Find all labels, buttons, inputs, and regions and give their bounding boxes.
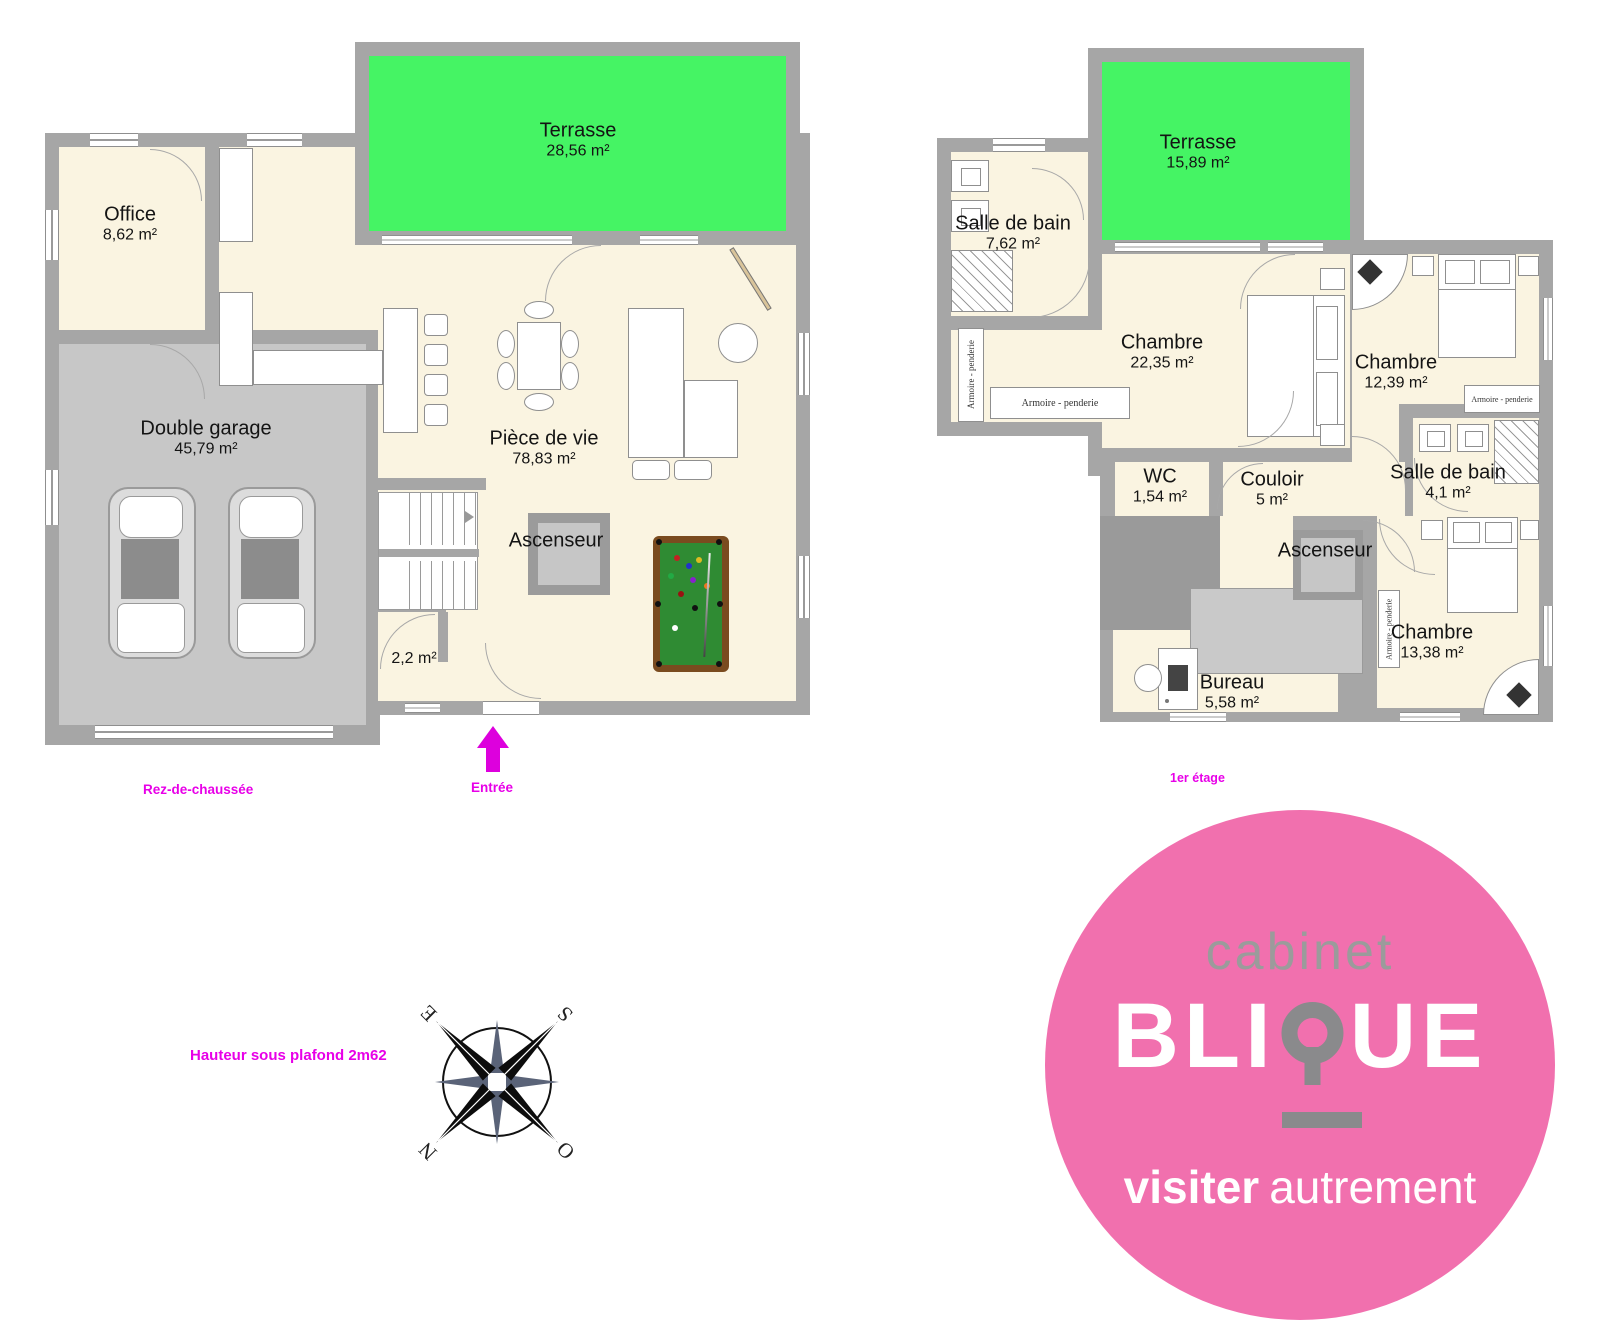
stool-icon: [424, 344, 448, 366]
window: [45, 470, 59, 525]
window: [1170, 712, 1226, 722]
logo-brand-prefix: BLI: [1112, 990, 1275, 1082]
compass-letter-s: S: [552, 1002, 577, 1027]
logo-q-icon: [1282, 1002, 1344, 1064]
sliding-bay-window: [382, 235, 572, 245]
window: [993, 138, 1045, 152]
stair-arrow-icon: [465, 511, 474, 523]
wardrobe-label: Armoire - penderie: [958, 328, 984, 422]
stool-icon: [424, 404, 448, 426]
chair-icon: [524, 393, 554, 411]
stair-divider: [379, 549, 479, 557]
caption-1er-etage: 1er étage: [1170, 771, 1225, 785]
stool-icon: [424, 314, 448, 336]
car-icon: [228, 487, 316, 659]
compass-rose-icon: N E S O: [392, 977, 602, 1187]
elevator-shaft: [528, 513, 610, 595]
car-icon: [108, 487, 196, 659]
logo-underline-icon: [1282, 1112, 1362, 1128]
kitchen-counter-icon: [253, 350, 383, 385]
logo-tagline: visiterautrement: [1124, 1160, 1477, 1214]
stool-icon: [424, 374, 448, 396]
chair-icon: [561, 362, 579, 390]
round-table-icon: [718, 323, 758, 363]
sliding-bay-window: [1115, 242, 1260, 252]
wall: [438, 612, 448, 662]
sofa-icon: [684, 380, 738, 458]
window: [798, 333, 810, 395]
room-label-office: Office8,62 m²: [103, 203, 157, 244]
room-label-ascenseur-rdc: Ascenseur: [509, 530, 604, 553]
sink-icon: [951, 160, 989, 192]
room-label-chambre-3: Chambre13,38 m²: [1391, 621, 1473, 662]
sofa-cushion-icon: [632, 460, 670, 480]
room-label-ascenseur-etage: Ascenseur: [1278, 540, 1373, 563]
logo-word-cabinet: cabinet: [1206, 922, 1395, 982]
wardrobe-label: Armoire - penderie: [1464, 385, 1540, 413]
window: [45, 210, 59, 260]
entrance-arrow-icon: [477, 726, 509, 772]
chair-icon: [497, 330, 515, 358]
room-label-terrasse-rdc: Terrasse28,56 m²: [540, 119, 617, 160]
sofa-cushion-icon: [674, 460, 712, 480]
nightstand-icon: [1518, 256, 1539, 276]
chair-icon: [497, 362, 515, 390]
window: [1543, 606, 1553, 666]
shower-icon: [951, 250, 1013, 312]
nightstand-icon: [1320, 268, 1345, 290]
room-label-piece-de-vie: Pièce de vie78,83 m²: [490, 427, 599, 468]
room-label-salle-de-bain-1: Salle de bain7,62 m²: [955, 212, 1071, 253]
room-label-salle-de-bain-2: Salle de bain4,1 m²: [1390, 461, 1506, 502]
room-label-garage: Double garage45,79 m²: [140, 417, 271, 458]
bed-icon: [1447, 517, 1518, 613]
chair-icon: [561, 330, 579, 358]
stairwell-opening: [1190, 588, 1363, 674]
room-label-wc: WC1,54 m²: [1133, 465, 1187, 506]
ceiling-height-note: Hauteur sous plafond 2m62: [190, 1047, 387, 1064]
window: [798, 556, 810, 618]
nightstand-icon: [1520, 520, 1539, 540]
window: [640, 235, 698, 245]
sofa-icon: [628, 308, 684, 458]
window: [1268, 242, 1323, 252]
kitchen-cabinet-icon: [219, 292, 253, 386]
kitchen-island-icon: [383, 308, 418, 433]
sink-icon: [1419, 424, 1451, 452]
kitchen-cabinet-icon: [219, 148, 253, 242]
chair-icon: [524, 301, 554, 319]
window: [405, 703, 440, 713]
stair-flight: [399, 561, 477, 609]
logo-brand-suffix: UE: [1350, 990, 1488, 1082]
wall: [366, 344, 378, 715]
bed-icon: [1438, 254, 1516, 358]
window: [90, 133, 138, 147]
garage-door: [95, 725, 333, 739]
room-label-chambre-2: Chambre12,39 m²: [1355, 351, 1437, 392]
logo-brand-name: BLIUE: [1112, 990, 1487, 1082]
sink-icon: [1457, 424, 1489, 452]
nightstand-icon: [1320, 424, 1345, 446]
desk-icon: [1158, 648, 1198, 710]
cue-stick-icon: [703, 553, 710, 657]
window: [1543, 298, 1553, 360]
staircase-icon: [378, 492, 478, 610]
room-label-entry-hall: 2,2 m²: [391, 650, 436, 668]
caption-entree: Entrée: [471, 780, 513, 795]
room-label-couloir: Couloir5 m²: [1240, 468, 1303, 509]
room-label-chambre-1: Chambre22,35 m²: [1121, 331, 1203, 372]
wall: [366, 478, 486, 490]
wardrobe-label: Armoire - penderie: [990, 387, 1130, 419]
window: [247, 133, 302, 147]
caption-rez-de-chaussee: Rez-de-chaussée: [143, 782, 253, 797]
window: [1400, 712, 1460, 722]
entry-door-opening: [483, 701, 539, 715]
room-label-terrasse-etage: Terrasse15,89 m²: [1160, 131, 1237, 172]
dining-table-icon: [517, 322, 561, 390]
nightstand-icon: [1412, 256, 1434, 276]
agency-logo: cabinet BLIUE visiterautrement: [1045, 810, 1555, 1320]
floor-plan-canvas: Terrasse28,56 m² Office8,62 m² Double ga…: [0, 0, 1600, 1327]
office-chair-icon: [1134, 664, 1162, 692]
room-label-bureau: Bureau5,58 m²: [1200, 671, 1265, 712]
garage-floor: [59, 344, 366, 725]
billiard-table-icon: [653, 536, 729, 672]
